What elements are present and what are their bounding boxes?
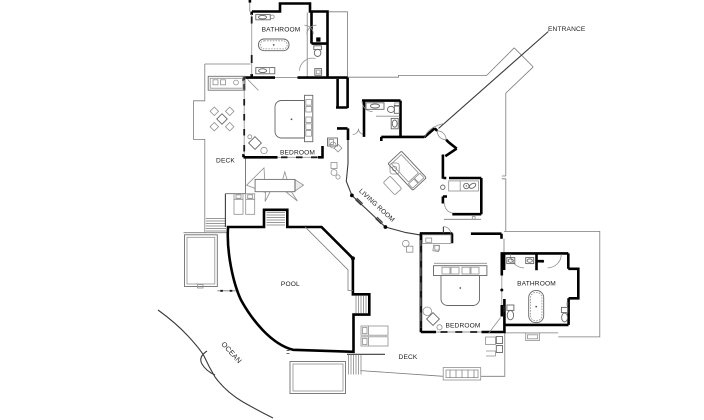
- svg-text:DECK: DECK: [399, 354, 418, 361]
- svg-text:BEDROOM: BEDROOM: [280, 150, 315, 157]
- svg-text:BATHROOM: BATHROOM: [517, 280, 556, 287]
- svg-text:DECK: DECK: [216, 158, 235, 165]
- svg-text:BEDROOM: BEDROOM: [445, 323, 480, 330]
- svg-text:BATHROOM: BATHROOM: [262, 27, 301, 34]
- svg-text:POOL: POOL: [281, 281, 300, 288]
- svg-text:ENTRANCE: ENTRANCE: [548, 26, 586, 33]
